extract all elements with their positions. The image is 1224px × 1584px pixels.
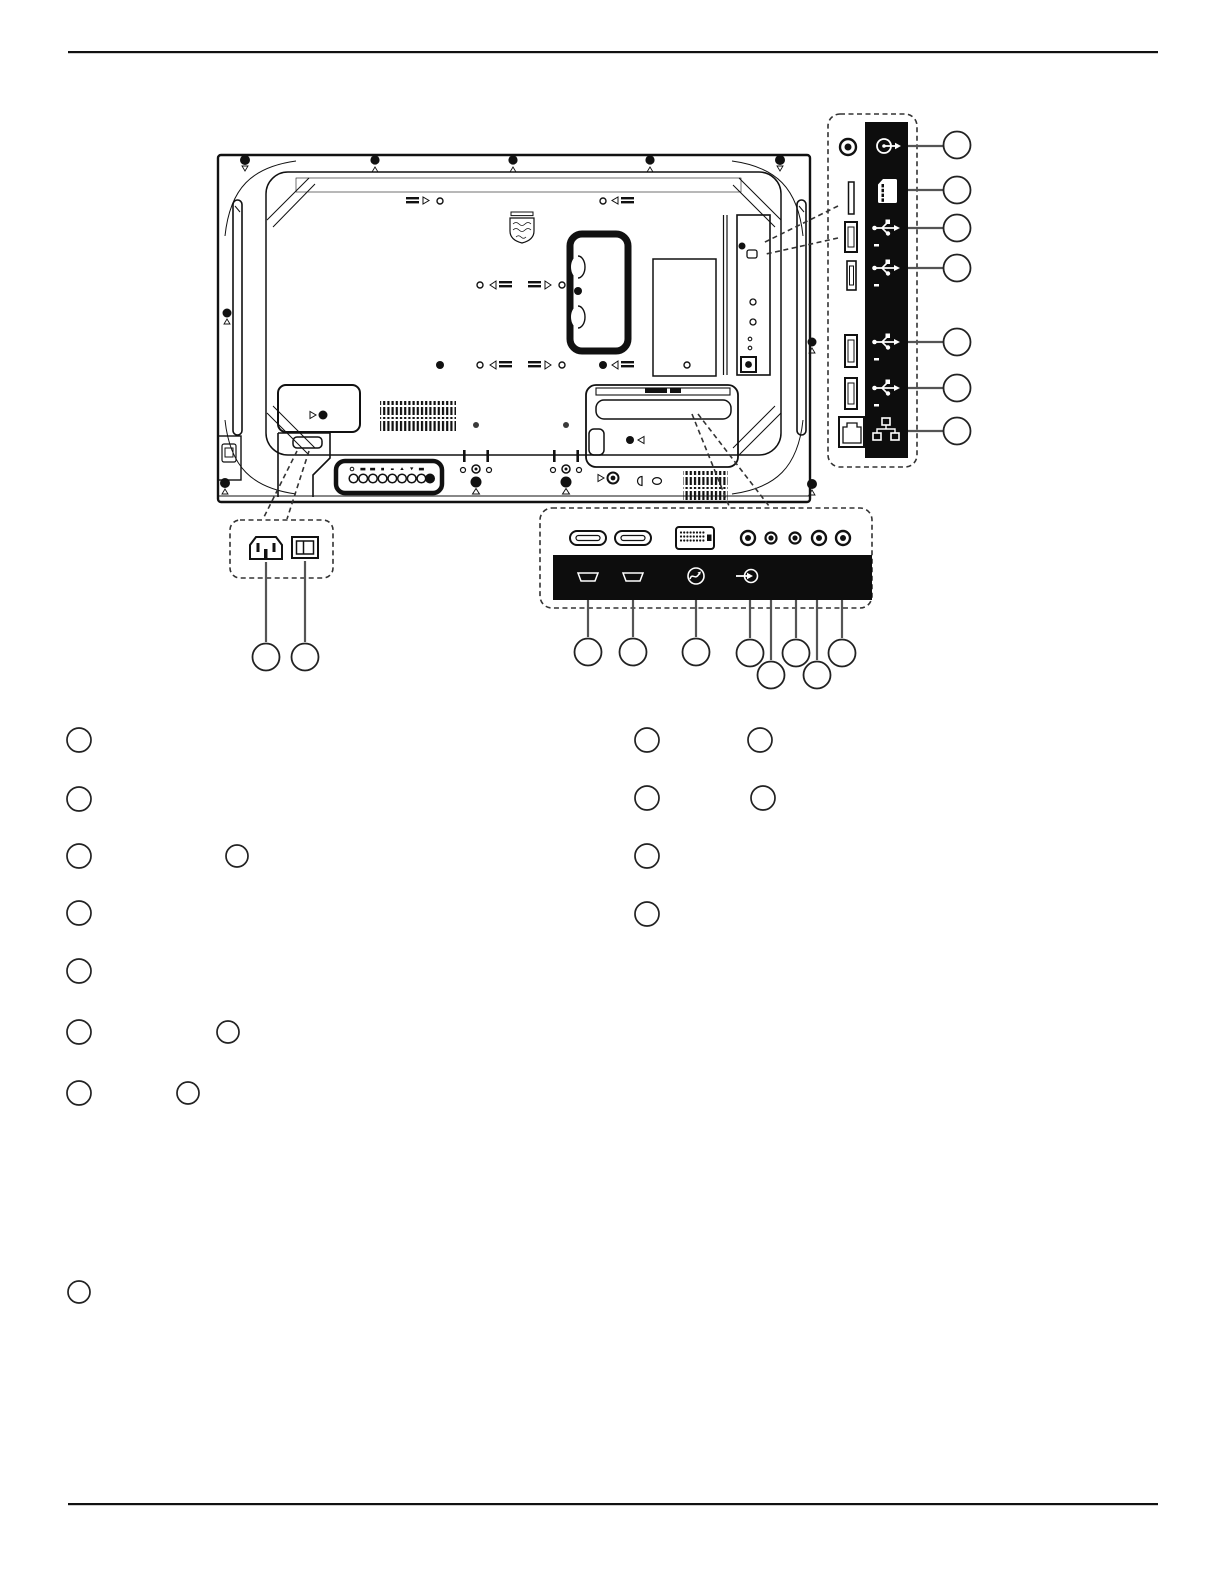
main-power-switch [292,537,318,558]
legend-bullet [635,844,659,868]
rating-label [653,259,716,376]
callout-circle [758,662,785,689]
legend-bullet [177,1082,199,1104]
ac-callout [230,520,333,671]
vesa-hole-markers [406,197,690,369]
3.5mm-jack [840,139,856,155]
callout-circle [620,639,647,666]
bottom-io-callout [540,508,872,689]
mount-cluster-right [551,422,582,494]
usb-port [845,222,857,252]
manual-page [0,0,1224,1584]
callout-circle [683,639,710,666]
usb-port [847,261,856,290]
footer-rule [68,1503,1158,1505]
philips-shield-icon [510,212,534,243]
rj45-port [839,417,864,447]
callout-circle [944,329,971,356]
bottom-label-strip [553,555,872,600]
header-rule [68,51,1158,53]
ac-inlet-recess [278,385,360,497]
microsd-card-icon [878,179,897,203]
legend-bullet [67,959,91,983]
control-buttons [349,467,435,483]
hdmi-port [615,531,651,545]
legend-bullet [67,1081,91,1105]
carry-handle [570,234,628,351]
rca-jack [766,533,777,544]
legend-bullet [67,1020,91,1044]
rca-jack [836,531,850,545]
callout-circle [804,662,831,689]
page-rules [68,51,1158,1505]
side-io-recess [724,215,771,375]
callout-circle [253,644,280,671]
microsd-slot [849,182,855,214]
bottom-marks [598,473,662,486]
legend-bullet [67,844,91,868]
dvi-port [676,527,714,549]
callout-rays [263,206,838,519]
legend-bullet [226,845,248,867]
legend-bullets [67,728,775,1303]
usb-port [845,378,857,409]
callout-circle [575,639,602,666]
legend-bullet [635,728,659,752]
outer-shell [218,155,810,502]
rear-view-diagram [0,0,1224,1584]
footnote-bullet [68,1281,90,1303]
legend-bullet [635,786,659,810]
legend-bullet [67,901,91,925]
rca-jack [741,531,755,545]
top-vent-grille [296,178,741,192]
callout-circle [829,640,856,667]
hdmi-port [570,531,606,545]
callout-circle [944,177,971,204]
mount-cluster-left [461,422,492,494]
callout-circle [783,640,810,667]
callout-circle [292,644,319,671]
legend-bullet [67,728,91,752]
callout-circle [737,640,764,667]
rca-jack [812,531,826,545]
ac-inlet-slot [293,437,322,448]
legend-bullet [748,728,772,752]
control-button-panel [336,461,442,493]
side-label-strip [865,122,908,458]
legend-bullet [67,787,91,811]
side-io-callout [828,114,971,467]
ac-inlet [250,537,282,559]
legend-bullet [751,786,775,810]
callout-circle [944,375,971,402]
rca-jack [790,533,801,544]
usb-port [845,335,857,367]
ir-sensor-dot [425,474,435,484]
legend-bullet [635,902,659,926]
inner-back-panel [266,172,781,455]
legend-bullet [217,1021,239,1043]
callout-circle [944,418,971,445]
callout-circle [944,132,971,159]
callout-circle [944,215,971,242]
display-rear-view [218,155,817,502]
callout-circle [944,255,971,282]
